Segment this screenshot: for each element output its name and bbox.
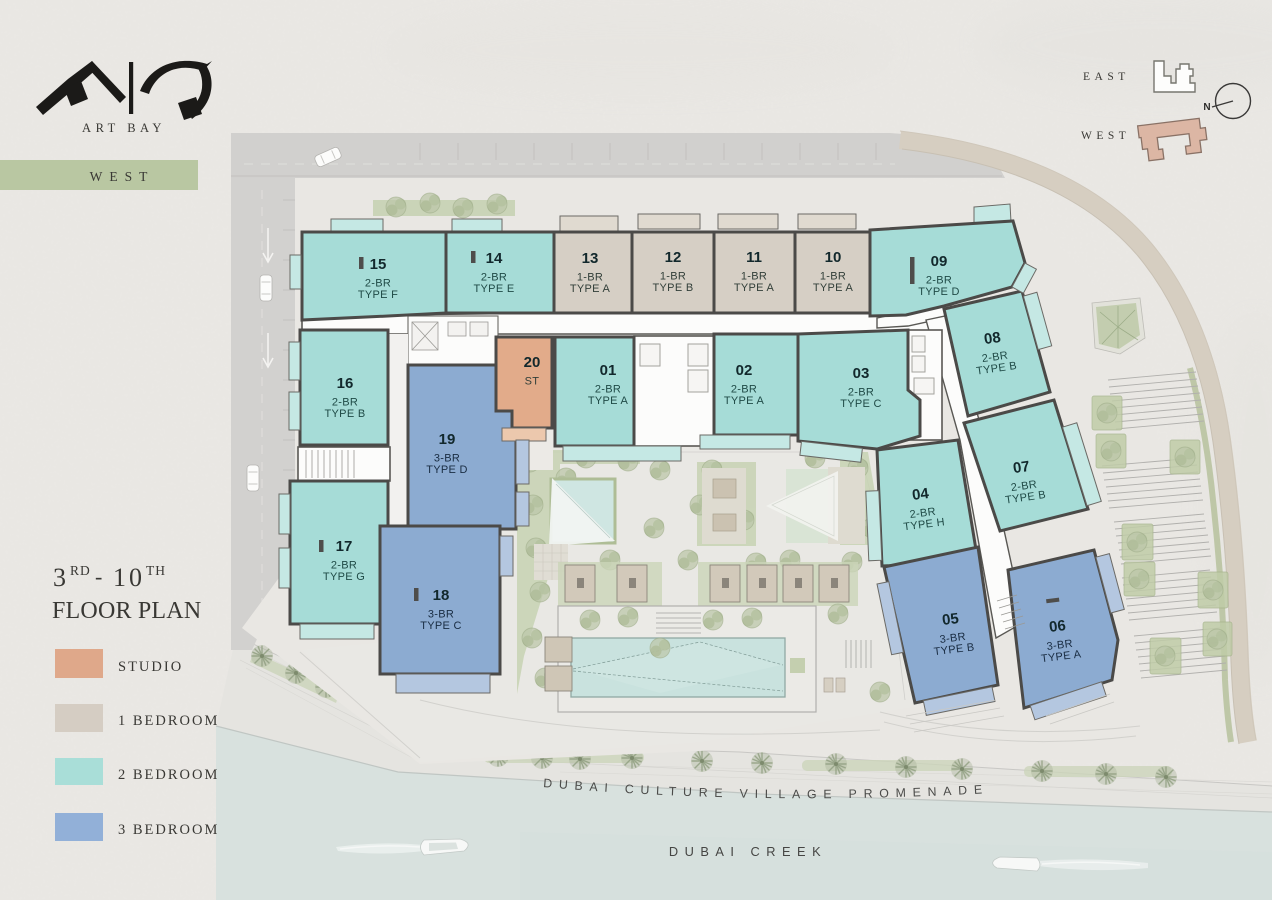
svg-text:TH: TH xyxy=(146,563,166,578)
svg-text:1-BR: 1-BR xyxy=(577,272,603,284)
svg-text:06: 06 xyxy=(1048,617,1067,636)
svg-text:2-BR: 2-BR xyxy=(926,275,952,287)
svg-text:16: 16 xyxy=(337,375,354,392)
svg-text:18: 18 xyxy=(433,587,450,604)
svg-text:3: 3 xyxy=(53,563,66,592)
svg-text:2-BR: 2-BR xyxy=(331,560,357,572)
svg-text:02: 02 xyxy=(736,362,753,379)
svg-text:2-BR: 2-BR xyxy=(595,384,621,396)
svg-text:TYPE E: TYPE E xyxy=(474,283,515,295)
svg-text:EAST: EAST xyxy=(1083,71,1130,83)
svg-text:1-BR: 1-BR xyxy=(820,271,846,283)
svg-text:RD: RD xyxy=(70,563,91,578)
svg-text:1-BR: 1-BR xyxy=(741,271,767,283)
svg-text:08: 08 xyxy=(983,329,1002,348)
svg-text:TYPE A: TYPE A xyxy=(734,282,775,294)
svg-text:14: 14 xyxy=(486,250,503,267)
svg-text:05: 05 xyxy=(941,610,960,629)
svg-text:ST: ST xyxy=(525,376,540,388)
svg-text:01: 01 xyxy=(600,362,617,379)
svg-text:WEST: WEST xyxy=(1081,130,1130,142)
svg-text:10: 10 xyxy=(825,249,842,266)
svg-text:N: N xyxy=(1203,102,1210,113)
svg-text:09: 09 xyxy=(931,253,948,270)
svg-text:TYPE C: TYPE C xyxy=(420,620,462,632)
svg-text:TYPE A: TYPE A xyxy=(570,283,611,295)
svg-text:11: 11 xyxy=(746,249,762,266)
svg-text:TYPE C: TYPE C xyxy=(840,398,882,410)
svg-text:20: 20 xyxy=(524,354,541,371)
svg-text:3-BR: 3-BR xyxy=(428,609,454,621)
svg-text:TYPE D: TYPE D xyxy=(426,464,468,476)
svg-text:1 BEDROOM: 1 BEDROOM xyxy=(118,713,219,729)
svg-text:03: 03 xyxy=(853,365,870,382)
svg-text:07: 07 xyxy=(1012,458,1031,477)
svg-text:TYPE A: TYPE A xyxy=(724,395,765,407)
svg-text:ART BAY: ART BAY xyxy=(82,121,166,135)
svg-text:STUDIO: STUDIO xyxy=(118,659,183,675)
svg-text:DUBAI CREEK: DUBAI CREEK xyxy=(669,844,827,859)
svg-text:TYPE A: TYPE A xyxy=(813,282,854,294)
svg-text:2 BEDROOM: 2 BEDROOM xyxy=(118,767,219,783)
svg-text:TYPE A: TYPE A xyxy=(588,395,629,407)
svg-text:TYPE G: TYPE G xyxy=(323,571,365,583)
svg-text:TYPE B: TYPE B xyxy=(325,408,366,420)
svg-text:TYPE B: TYPE B xyxy=(653,282,694,294)
svg-text:2-BR: 2-BR xyxy=(731,384,757,396)
svg-text:2-BR: 2-BR xyxy=(365,278,391,290)
svg-text:2-BR: 2-BR xyxy=(481,272,507,284)
svg-text:3 BEDROOM: 3 BEDROOM xyxy=(118,822,219,838)
svg-text:TYPE F: TYPE F xyxy=(358,289,398,301)
svg-text:04: 04 xyxy=(911,485,930,504)
svg-text:3-BR: 3-BR xyxy=(434,453,460,465)
svg-text:17: 17 xyxy=(336,538,353,555)
svg-text:-: - xyxy=(95,564,102,589)
svg-text:WEST: WEST xyxy=(90,169,155,184)
svg-text:1-BR: 1-BR xyxy=(660,271,686,283)
svg-text:15: 15 xyxy=(370,256,387,273)
svg-text:2-BR: 2-BR xyxy=(332,397,358,409)
svg-text:TYPE D: TYPE D xyxy=(918,286,960,298)
svg-text:13: 13 xyxy=(582,250,599,267)
svg-text:19: 19 xyxy=(439,431,456,448)
svg-text:FLOOR PLAN: FLOOR PLAN xyxy=(52,598,201,624)
svg-text:2-BR: 2-BR xyxy=(848,387,874,399)
svg-text:10: 10 xyxy=(113,563,145,592)
svg-text:12: 12 xyxy=(665,249,682,266)
